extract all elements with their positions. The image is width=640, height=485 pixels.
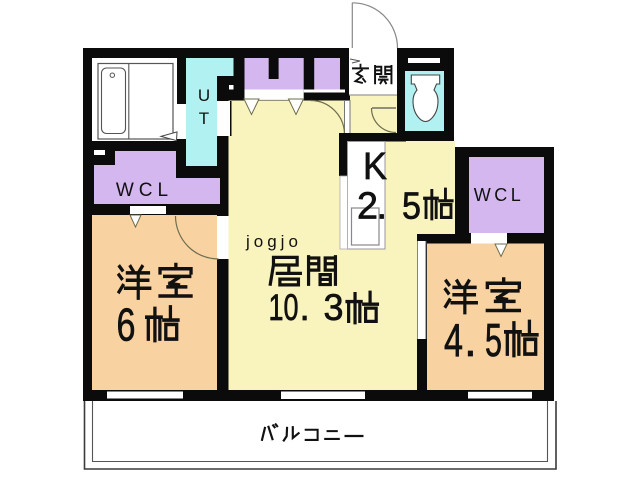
svg-text:jogjo: jogjo (245, 232, 302, 251)
svg-text:2: 2 (357, 186, 378, 228)
svg-text:5: 5 (485, 314, 502, 366)
svg-text:U: U (198, 86, 210, 105)
svg-text:.: . (300, 287, 310, 328)
svg-text:K: K (363, 146, 387, 188)
svg-text:.: . (464, 314, 477, 366)
svg-text:6: 6 (117, 299, 136, 351)
svg-text:WCL: WCL (474, 185, 525, 205)
svg-text:4: 4 (444, 314, 463, 366)
svg-text:5: 5 (402, 186, 421, 228)
svg-text:10: 10 (269, 287, 299, 328)
svg-text:.: . (377, 186, 388, 228)
svg-text:3: 3 (324, 287, 344, 328)
svg-text:T: T (199, 109, 209, 128)
svg-text:WCL: WCL (116, 180, 173, 201)
